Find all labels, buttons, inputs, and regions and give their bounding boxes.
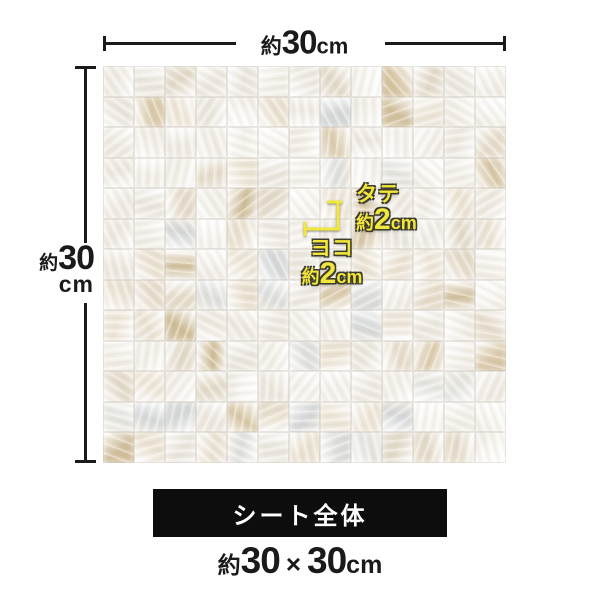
- mosaic-tile: [227, 371, 258, 402]
- mosaic-tile: [134, 219, 165, 250]
- mosaic-tile: [382, 432, 413, 463]
- mosaic-tile: [258, 127, 289, 158]
- mosaic-tile: [413, 127, 444, 158]
- dimension-end-tick: [503, 36, 506, 51]
- size-width-value: 30: [241, 540, 280, 581]
- mosaic-tile: [289, 66, 320, 97]
- mosaic-tile: [134, 97, 165, 128]
- mosaic-tile: [165, 97, 196, 128]
- mosaic-tile: [103, 188, 134, 219]
- dimension-line-segment: [385, 42, 503, 45]
- sheet-size-text: 約30×30cm: [0, 540, 600, 582]
- mosaic-tile: [475, 127, 506, 158]
- mosaic-tile: [103, 341, 134, 372]
- mosaic-tile: [382, 127, 413, 158]
- mosaic-tile: [103, 280, 134, 311]
- mosaic-tile: [196, 66, 227, 97]
- mosaic-tile: [351, 432, 382, 463]
- mosaic-tile: [103, 249, 134, 280]
- tile-width-label: ヨコ 約2cm: [272, 238, 392, 290]
- mosaic-tile: [475, 188, 506, 219]
- dimension-line-segment: [84, 303, 87, 460]
- mosaic-tile: [382, 97, 413, 128]
- mosaic-tile: [227, 341, 258, 372]
- mosaic-tile: [196, 97, 227, 128]
- tile-width-value: 2: [320, 257, 337, 290]
- mosaic-tile: [227, 127, 258, 158]
- mosaic-tile: [475, 432, 506, 463]
- mosaic-tile: [475, 371, 506, 402]
- mosaic-tile: [413, 219, 444, 250]
- tile-width-unit: cm: [336, 267, 362, 287]
- mosaic-tile: [382, 66, 413, 97]
- mosaic-tile: [258, 341, 289, 372]
- mosaic-tile: [103, 371, 134, 402]
- size-height-value: 30: [307, 540, 346, 581]
- mosaic-tile: [103, 219, 134, 250]
- approx-text: 約: [39, 253, 58, 274]
- mosaic-tile: [413, 432, 444, 463]
- mosaic-tile: [351, 66, 382, 97]
- approx-text: 約: [218, 552, 241, 578]
- mosaic-tile: [444, 127, 475, 158]
- banner-label: シート全体: [233, 496, 368, 531]
- mosaic-tile: [103, 66, 134, 97]
- mosaic-tile: [196, 402, 227, 433]
- mosaic-tile: [382, 371, 413, 402]
- mosaic-tile: [475, 402, 506, 433]
- mosaic-tile: [165, 66, 196, 97]
- mosaic-tile: [444, 280, 475, 311]
- approx-text: 約: [302, 267, 320, 287]
- mosaic-tile: [289, 402, 320, 433]
- mosaic-tile: [475, 158, 506, 189]
- mosaic-tile: [134, 280, 165, 311]
- tile-measure-bracket-icon: [300, 198, 344, 240]
- mosaic-tile: [134, 188, 165, 219]
- tile-height-unit: cm: [391, 213, 417, 233]
- multiply-sign: ×: [280, 549, 307, 579]
- mosaic-tile: [258, 310, 289, 341]
- mosaic-tile: [103, 432, 134, 463]
- tile-height-value: 2: [374, 203, 391, 236]
- mosaic-tile: [289, 158, 320, 189]
- mosaic-tile: [103, 158, 134, 189]
- product-dimension-image: 約30cm 約30 cm タテ 約2cm ヨコ 約2cm シート全体 約30×3…: [0, 0, 600, 600]
- mosaic-tile: [289, 127, 320, 158]
- mosaic-tile: [196, 310, 227, 341]
- mosaic-tile: [444, 97, 475, 128]
- width-value: 30: [282, 23, 317, 60]
- mosaic-tile: [227, 97, 258, 128]
- mosaic-tile: [444, 432, 475, 463]
- mosaic-tile: [165, 280, 196, 311]
- mosaic-tile: [258, 188, 289, 219]
- mosaic-tile: [165, 341, 196, 372]
- mosaic-tile: [413, 97, 444, 128]
- mosaic-tile: [258, 66, 289, 97]
- mosaic-tile: [103, 402, 134, 433]
- mosaic-tile: [165, 371, 196, 402]
- size-unit: cm: [346, 551, 382, 579]
- mosaic-tile: [475, 280, 506, 311]
- mosaic-tile: [351, 97, 382, 128]
- mosaic-tile: [134, 127, 165, 158]
- mosaic-tile: [444, 219, 475, 250]
- mosaic-tile: [165, 310, 196, 341]
- mosaic-tile: [320, 310, 351, 341]
- mosaic-tile: [134, 432, 165, 463]
- mosaic-tile: [444, 371, 475, 402]
- mosaic-tile: [227, 432, 258, 463]
- mosaic-tile: [289, 310, 320, 341]
- mosaic-tile: [165, 432, 196, 463]
- mosaic-tile: [413, 66, 444, 97]
- mosaic-tile: [351, 341, 382, 372]
- mosaic-tile: [351, 310, 382, 341]
- mosaic-tile: [382, 341, 413, 372]
- mosaic-tile: [165, 219, 196, 250]
- mosaic-tile: [413, 249, 444, 280]
- mosaic-tile: [320, 97, 351, 128]
- mosaic-tile: [289, 371, 320, 402]
- mosaic-tile: [227, 249, 258, 280]
- mosaic-tile: [320, 66, 351, 97]
- mosaic-tile: [289, 97, 320, 128]
- mosaic-tile: [475, 66, 506, 97]
- mosaic-tile: [103, 127, 134, 158]
- mosaic-tile: [196, 127, 227, 158]
- mosaic-tile: [103, 97, 134, 128]
- mosaic-tile: [320, 402, 351, 433]
- mosaic-tile: [444, 310, 475, 341]
- mosaic-tile: [351, 402, 382, 433]
- mosaic-tile: [444, 402, 475, 433]
- mosaic-tile: [413, 310, 444, 341]
- mosaic-tile: [227, 310, 258, 341]
- mosaic-tile: [227, 66, 258, 97]
- sheet-height-label: 約30 cm: [16, 243, 94, 296]
- mosaic-tile: [134, 402, 165, 433]
- mosaic-tile: [227, 188, 258, 219]
- mosaic-tile: [289, 432, 320, 463]
- mosaic-tile: [320, 127, 351, 158]
- mosaic-tile: [258, 158, 289, 189]
- mosaic-tile: [165, 127, 196, 158]
- mosaic-tile: [382, 310, 413, 341]
- mosaic-tile: [258, 97, 289, 128]
- mosaic-tile: [227, 280, 258, 311]
- mosaic-tile: [444, 249, 475, 280]
- mosaic-tile: [475, 249, 506, 280]
- mosaic-tile: [134, 341, 165, 372]
- mosaic-tile: [444, 66, 475, 97]
- mosaic-tile: [165, 158, 196, 189]
- mosaic-tile: [258, 402, 289, 433]
- mosaic-tile: [196, 280, 227, 311]
- mosaic-tile: [227, 219, 258, 250]
- mosaic-tile: [475, 341, 506, 372]
- mosaic-tile: [196, 371, 227, 402]
- mosaic-tile: [444, 158, 475, 189]
- mosaic-tile: [196, 249, 227, 280]
- tile-height-label: タテ 約2cm: [356, 184, 417, 236]
- mosaic-tile: [475, 97, 506, 128]
- mosaic-tile: [134, 249, 165, 280]
- top-dimension-line: 約30cm: [103, 36, 506, 51]
- sheet-total-banner: シート全体: [153, 489, 447, 537]
- mosaic-tile: [320, 371, 351, 402]
- height-unit: cm: [59, 271, 94, 297]
- mosaic-tile: [134, 66, 165, 97]
- mosaic-tile: [475, 219, 506, 250]
- mosaic-tile: [351, 371, 382, 402]
- mosaic-tile: [413, 280, 444, 311]
- mosaic-tile: [196, 219, 227, 250]
- dimension-line-segment: [84, 69, 87, 243]
- mosaic-tile: [196, 432, 227, 463]
- mosaic-tile: [134, 158, 165, 189]
- mosaic-tile: [320, 158, 351, 189]
- mosaic-tile: [351, 127, 382, 158]
- mosaic-tile: [103, 310, 134, 341]
- mosaic-tile: [444, 341, 475, 372]
- mosaic-tile: [413, 402, 444, 433]
- mosaic-tile: [196, 341, 227, 372]
- mosaic-tile: [320, 432, 351, 463]
- approx-text: 約: [356, 213, 374, 233]
- mosaic-tile: [227, 158, 258, 189]
- approx-text: 約: [261, 35, 282, 58]
- mosaic-tile: [320, 341, 351, 372]
- mosaic-tile: [134, 371, 165, 402]
- mosaic-tile: [134, 310, 165, 341]
- mosaic-tile: [444, 188, 475, 219]
- mosaic-tile: [413, 371, 444, 402]
- mosaic-tile: [382, 402, 413, 433]
- mosaic-tile: [475, 310, 506, 341]
- mosaic-tile: [413, 158, 444, 189]
- mosaic-tile: [413, 341, 444, 372]
- width-unit: cm: [316, 33, 348, 58]
- mosaic-tile: [196, 158, 227, 189]
- mosaic-tile: [258, 371, 289, 402]
- mosaic-tile: [165, 188, 196, 219]
- mosaic-tile: [227, 402, 258, 433]
- mosaic-tile: [196, 188, 227, 219]
- mosaic-tile: [165, 249, 196, 280]
- dimension-end-tick: [75, 460, 96, 463]
- mosaic-tile: [413, 188, 444, 219]
- mosaic-tile: [258, 432, 289, 463]
- mosaic-tile: [165, 402, 196, 433]
- mosaic-tile: [289, 341, 320, 372]
